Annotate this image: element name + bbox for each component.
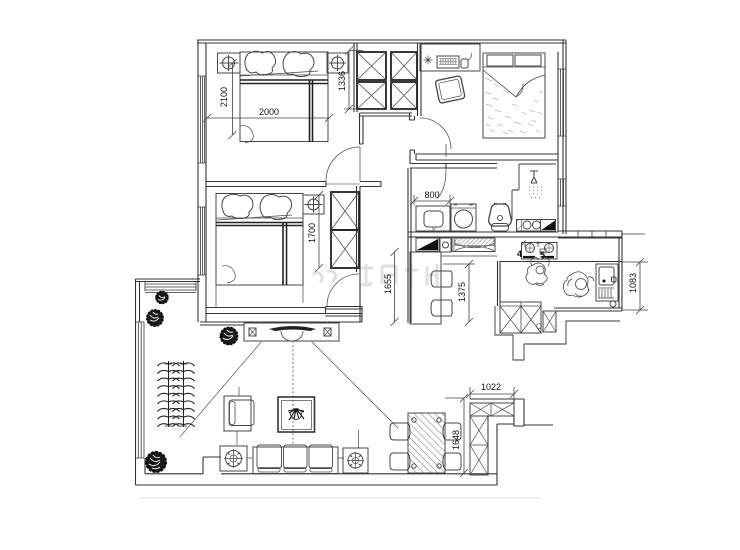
svg-text:2000: 2000 [259,107,279,117]
svg-text:1022: 1022 [481,382,501,392]
svg-text:1700: 1700 [307,223,317,243]
svg-text:5: 5 [540,250,545,260]
svg-text:4: 4 [517,249,522,259]
svg-text:1655: 1655 [383,274,393,294]
svg-text:1083: 1083 [628,273,638,293]
svg-text:1375: 1375 [457,282,467,302]
svg-text:800: 800 [424,190,439,200]
svg-text:1648: 1648 [451,430,461,450]
svg-text:1336: 1336 [337,71,347,91]
svg-text:2100: 2100 [219,87,229,107]
